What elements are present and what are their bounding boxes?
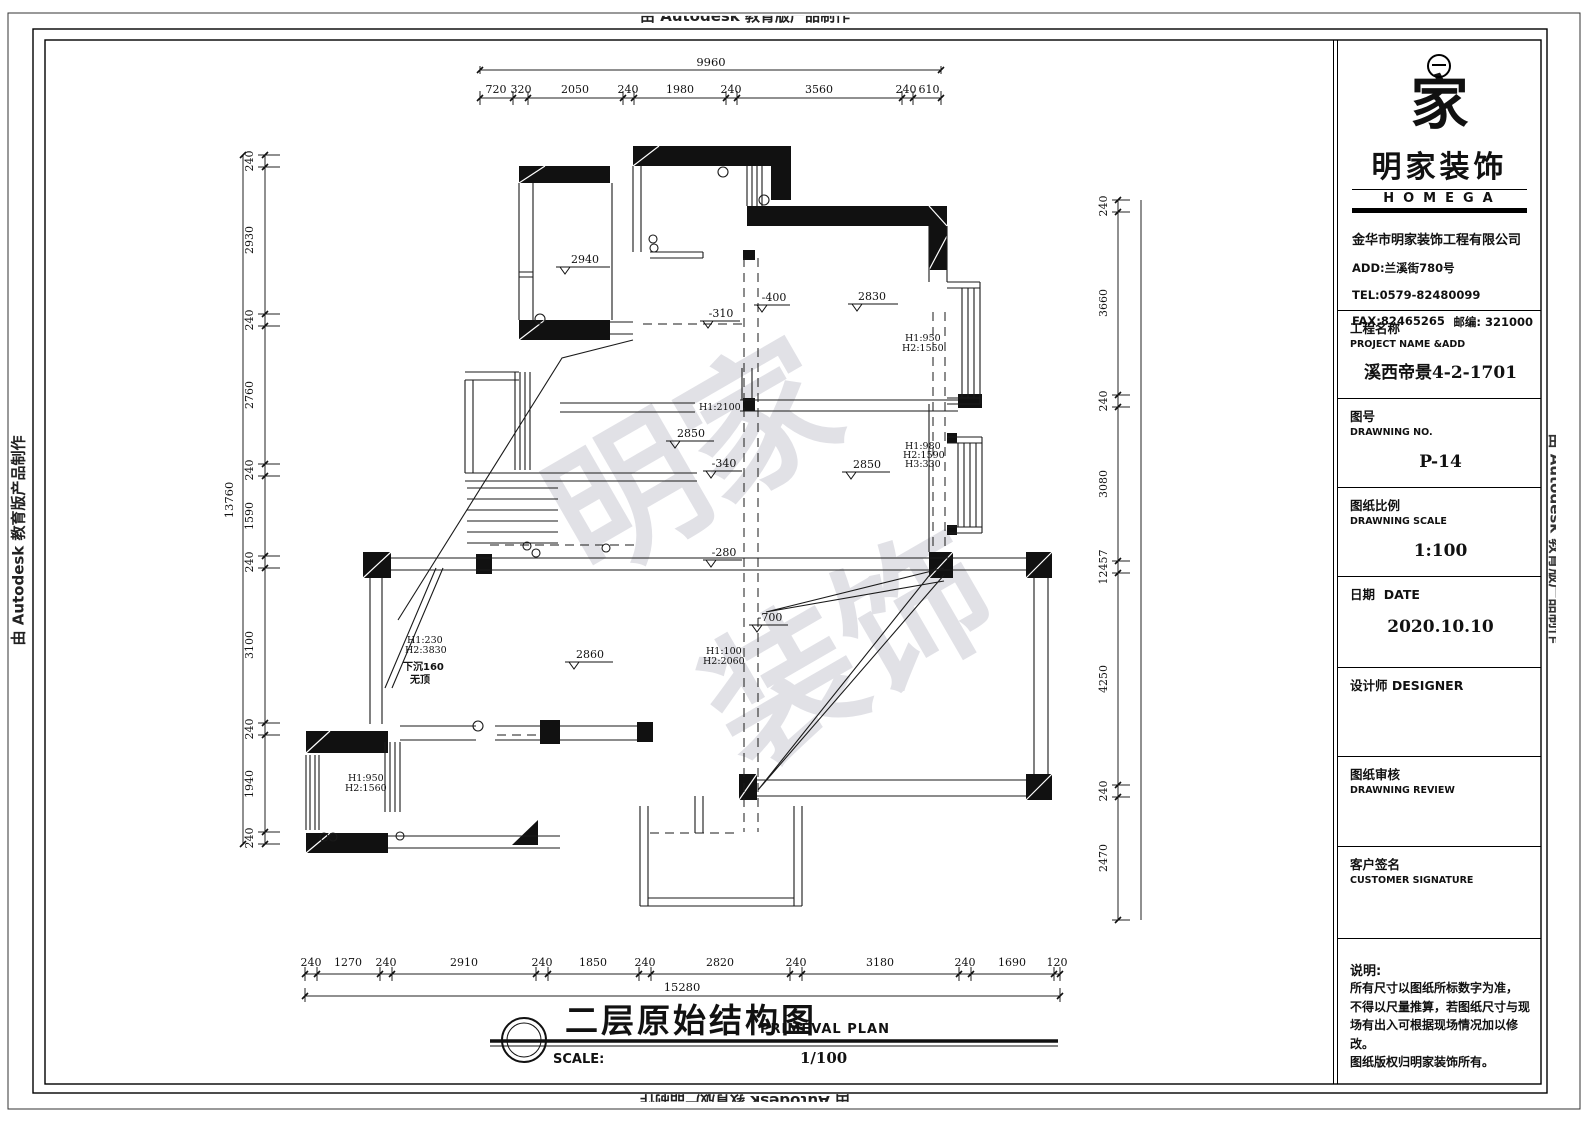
height-label: H1:2100 xyxy=(699,402,741,413)
dim-total-bottom: 15280 xyxy=(664,980,701,994)
brand-name-en: HOMEGA xyxy=(1352,189,1527,208)
scale-label-cn: 图纸比例 xyxy=(1350,495,1531,514)
review-label-en: DRAWNING REVIEW xyxy=(1350,785,1531,796)
scale-value: 1:100 xyxy=(1350,541,1531,561)
dim-label: 240 xyxy=(243,310,256,331)
elev-label: 2940 xyxy=(571,253,599,266)
notes-line: 图纸版权归明家装饰所有。 xyxy=(1350,1053,1531,1072)
dim-label: 3080 xyxy=(1097,470,1110,498)
signature-label-en: CUSTOMER SIGNATURE xyxy=(1350,875,1531,886)
dim-label: 240 xyxy=(243,460,256,481)
dim-label: 3560 xyxy=(805,83,833,96)
dim-label: 240 xyxy=(618,83,639,96)
project-label: 工程名称 xyxy=(1350,318,1531,337)
dim-label: 240 xyxy=(243,151,256,172)
dim-label: 720 xyxy=(486,83,507,96)
scale-label: SCALE: xyxy=(553,1052,604,1067)
section-review: 图纸审核 DRAWNING REVIEW xyxy=(1338,756,1541,846)
dim-labels-top: 9960 720 320 2050 240 1980 240 3560 240 … xyxy=(486,55,940,96)
height-label: H3:330 xyxy=(905,459,941,470)
sunken-label: 下沉160 xyxy=(403,660,444,673)
notes-line: 场有出入可根据现场情况加以修改。 xyxy=(1350,1016,1531,1053)
dim-label: 2470 xyxy=(1097,844,1110,872)
date-label-cn: 日期 xyxy=(1350,587,1375,602)
dim-label: 1850 xyxy=(579,956,607,969)
dim-label: 4250 xyxy=(1097,665,1110,693)
title-block: 家 明家装饰 HOMEGA 金华市明家装饰工程有限公司 ADD:兰溪街780号 … xyxy=(1333,40,1541,1084)
sunken-label: 无顶 xyxy=(409,674,430,686)
dim-label: 2050 xyxy=(561,83,589,96)
elev-label: 2830 xyxy=(858,290,886,303)
dim-label: 1690 xyxy=(998,956,1026,969)
dim-labels-bottom: 15280 240 1270 240 2910 240 1850 240 282… xyxy=(301,956,1068,994)
elev-label: 2850 xyxy=(853,458,881,471)
scale-value: 1/100 xyxy=(800,1049,847,1067)
elev-label: -310 xyxy=(709,307,734,320)
company-logo: 家 xyxy=(1338,40,1541,140)
section-date: 日期 DATE 2020.10.10 xyxy=(1338,576,1541,667)
height-label: H2:1550 xyxy=(902,343,944,354)
dim-label: 12457 xyxy=(1097,550,1110,585)
elev-label: -280 xyxy=(712,546,737,559)
dim-label: 2910 xyxy=(450,956,478,969)
logo-seal-icon xyxy=(1427,54,1451,78)
drawing-no-label-en: DRAWNING NO. xyxy=(1350,427,1531,438)
section-designer: 设计师 DESIGNER xyxy=(1338,667,1541,756)
date-label-en: DATE xyxy=(1384,587,1420,602)
dim-label: 2760 xyxy=(243,381,256,409)
dim-label: 240 xyxy=(721,83,742,96)
elev-label: -400 xyxy=(762,291,787,304)
scale-label-en: DRAWNING SCALE xyxy=(1350,516,1531,527)
height-label: H2:1560 xyxy=(345,783,387,794)
brand-name: 明家装饰 xyxy=(1338,142,1541,186)
height-label: H2:2060 xyxy=(703,656,745,667)
dim-label: 240 xyxy=(1097,391,1110,412)
section-drawing-no: 图号 DRAWNING NO. P-14 xyxy=(1338,398,1541,487)
drawing-no-value: P-14 xyxy=(1350,452,1531,472)
dim-labels-right: 240 3660 240 3080 12457 4250 240 2470 xyxy=(1097,196,1110,873)
dim-label: 240 xyxy=(532,956,553,969)
dim-label: 240 xyxy=(635,956,656,969)
drawing-no-label: 图号 xyxy=(1350,406,1531,425)
section-scale: 图纸比例 DRAWNING SCALE 1:100 xyxy=(1338,487,1541,576)
notes-line: 不得以尺量推算，若图纸尺寸与现 xyxy=(1350,998,1531,1017)
height-label: H2:3830 xyxy=(405,645,447,656)
project-value: 溪西帝景4-2-1701 xyxy=(1350,358,1531,383)
dim-label: 240 xyxy=(243,719,256,740)
elev-label: -340 xyxy=(712,457,737,470)
signature-label: 客户签名 xyxy=(1350,854,1531,873)
title-block-header: 家 明家装饰 HOMEGA 金华市明家装饰工程有限公司 ADD:兰溪街780号 … xyxy=(1338,40,1541,310)
drawing-title-group: 二层原始结构图 PRIMEVAL PLAN SCALE: 1/100 xyxy=(490,1001,1058,1067)
dim-total-left: 13760 xyxy=(222,482,236,519)
dim-label: 2820 xyxy=(706,956,734,969)
dim-label: 1980 xyxy=(666,83,694,96)
company-address: ADD:兰溪街780号 xyxy=(1352,260,1541,276)
dim-label: 1270 xyxy=(334,956,362,969)
brand-bar xyxy=(1352,208,1527,213)
dim-label: 240 xyxy=(243,828,256,849)
dim-label: 240 xyxy=(896,83,917,96)
dim-total-top: 9960 xyxy=(696,55,725,69)
dim-label: 240 xyxy=(376,956,397,969)
dim-label: 1940 xyxy=(243,770,256,798)
designer-label-cn: 设计师 xyxy=(1350,678,1388,693)
date-value: 2020.10.10 xyxy=(1350,617,1531,637)
elev-label: -700 xyxy=(758,611,783,624)
designer-label: 设计师 DESIGNER xyxy=(1350,675,1531,694)
dim-label: 3660 xyxy=(1097,289,1110,317)
date-label: 日期 DATE xyxy=(1350,584,1531,603)
section-notes: 说明: 所有尺寸以图纸所标数字为准， 不得以尺量推算，若图纸尺寸与现 场有出入可… xyxy=(1338,938,1541,1084)
drawing-sheet: 明家 装饰 xyxy=(0,0,1587,1123)
dim-label: 240 xyxy=(301,956,322,969)
dim-label: 2930 xyxy=(243,226,256,254)
dim-label: 240 xyxy=(243,552,256,573)
elev-label: 2850 xyxy=(677,427,705,440)
section-signature: 客户签名 CUSTOMER SIGNATURE xyxy=(1338,846,1541,938)
logo-mark-icon: 家 xyxy=(1410,54,1468,140)
dim-label: 240 xyxy=(955,956,976,969)
elev-label: 2860 xyxy=(576,648,604,661)
dim-label: 240 xyxy=(1097,196,1110,217)
dim-labels-left: 13760 240 2930 240 2760 240 1590 240 310… xyxy=(222,151,256,849)
notes-line: 所有尺寸以图纸所标数字为准， xyxy=(1350,979,1531,998)
review-label: 图纸审核 xyxy=(1350,764,1531,783)
autodesk-mark-left: 由 Autodesk 教育版产品制作 xyxy=(8,421,29,661)
notes-label: 说明: xyxy=(1350,960,1531,979)
dim-label: 320 xyxy=(511,83,532,96)
project-label-en: PROJECT NAME &ADD xyxy=(1350,339,1531,350)
designer-label-en: DESIGNER xyxy=(1392,678,1463,693)
drawing-title-en: PRIMEVAL PLAN xyxy=(760,1022,890,1037)
dim-label: 240 xyxy=(786,956,807,969)
company-tel: TEL:0579-82480099 xyxy=(1352,288,1541,302)
dim-label: 3100 xyxy=(243,631,256,659)
dim-label: 3180 xyxy=(866,956,894,969)
section-project: 工程名称 PROJECT NAME &ADD 溪西帝景4-2-1701 xyxy=(1338,310,1541,398)
dim-label: 240 xyxy=(1097,781,1110,802)
company-name: 金华市明家装饰工程有限公司 xyxy=(1352,229,1541,248)
dim-label: 610 xyxy=(919,83,940,96)
dim-label: 1590 xyxy=(243,502,256,530)
dim-label: 120 xyxy=(1047,956,1068,969)
